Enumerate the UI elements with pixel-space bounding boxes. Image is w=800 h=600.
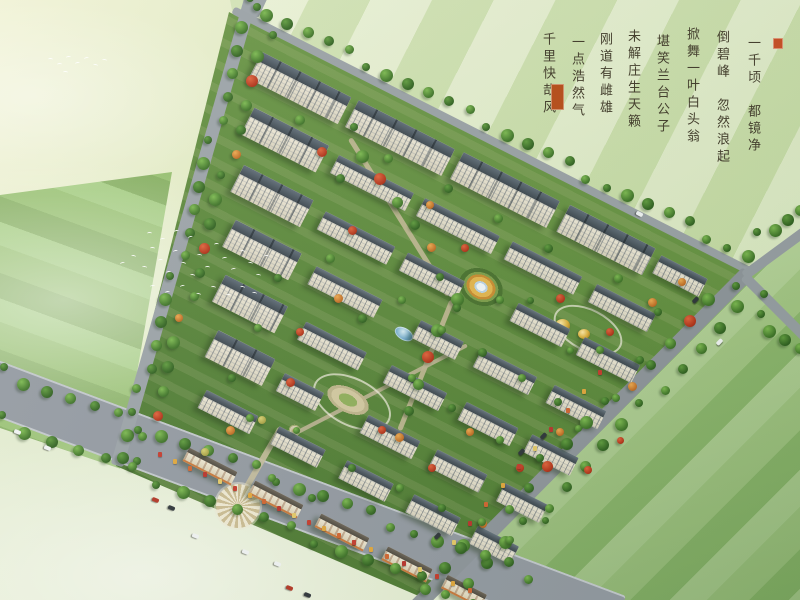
tree xyxy=(556,428,564,436)
tree xyxy=(226,426,235,435)
tree xyxy=(480,550,491,561)
bird xyxy=(142,266,147,270)
tree xyxy=(603,184,611,192)
tree xyxy=(436,273,444,281)
retail-banner xyxy=(468,588,472,593)
tree xyxy=(303,27,314,38)
tree xyxy=(466,428,474,436)
tree xyxy=(258,416,266,424)
tree xyxy=(565,156,575,166)
tree xyxy=(439,562,451,574)
bird xyxy=(48,58,53,61)
bird xyxy=(211,286,216,290)
tree xyxy=(336,174,345,183)
tree xyxy=(664,207,675,218)
tree xyxy=(606,328,614,336)
tree xyxy=(567,347,574,354)
bird xyxy=(158,259,163,262)
tree xyxy=(374,173,386,185)
tree xyxy=(466,105,475,114)
tree xyxy=(438,326,446,334)
calligraphy-column: 一点浩然气 xyxy=(570,35,583,120)
tree xyxy=(260,9,273,22)
retail-banner xyxy=(451,581,455,586)
tree xyxy=(581,175,590,184)
tree xyxy=(223,92,233,102)
tree xyxy=(241,100,252,111)
tree xyxy=(596,346,604,354)
tree xyxy=(763,325,776,338)
tree xyxy=(428,464,436,472)
tree xyxy=(334,294,343,303)
tree xyxy=(422,351,434,363)
calligraphy-column: 掀舞一叶白头翁 xyxy=(685,27,698,146)
bird xyxy=(160,238,165,242)
tree xyxy=(501,129,514,142)
tree xyxy=(545,504,554,513)
tree xyxy=(782,214,794,226)
tree xyxy=(293,483,306,496)
tree xyxy=(408,374,416,382)
tree xyxy=(575,425,582,432)
tree xyxy=(760,290,768,298)
tree xyxy=(496,436,504,444)
tree xyxy=(177,486,190,499)
tree xyxy=(426,201,434,209)
bird xyxy=(214,243,219,246)
bird xyxy=(226,294,231,297)
tree xyxy=(217,171,225,179)
bird xyxy=(252,292,257,296)
tree xyxy=(296,328,304,336)
tree xyxy=(615,418,628,431)
tree xyxy=(324,36,334,46)
retail-banner xyxy=(598,370,602,375)
tree xyxy=(151,340,162,351)
tree xyxy=(246,414,254,422)
tree xyxy=(384,154,393,163)
retail-banner xyxy=(188,466,192,471)
tree xyxy=(204,218,216,230)
tree xyxy=(518,374,526,382)
tree xyxy=(544,244,553,253)
tree xyxy=(121,429,134,442)
retail-banner xyxy=(435,574,439,579)
calligraphy-column: 倒碧峰 忽然浪起 xyxy=(715,30,728,166)
retail-banner xyxy=(385,554,389,559)
tree xyxy=(231,45,243,57)
tree xyxy=(584,466,592,474)
retail-banner xyxy=(549,427,553,432)
tree xyxy=(795,205,800,216)
tree xyxy=(444,184,453,193)
tree xyxy=(617,437,624,444)
tree xyxy=(232,150,241,159)
tree xyxy=(527,297,534,304)
retail-banner xyxy=(501,483,505,488)
retail-banner xyxy=(533,446,537,451)
calligraphy-column: 堪笑兰台公子 xyxy=(655,34,668,136)
bird xyxy=(150,285,155,288)
tree xyxy=(506,536,514,544)
retail-banner xyxy=(307,520,311,525)
tree xyxy=(308,494,316,502)
tree xyxy=(461,244,469,252)
tree xyxy=(448,404,456,412)
retail-banner xyxy=(248,493,252,498)
tree xyxy=(73,445,84,456)
tree xyxy=(556,294,565,303)
tree xyxy=(204,495,216,507)
tree xyxy=(295,115,305,125)
tree xyxy=(580,416,593,429)
retail-banner xyxy=(233,486,237,491)
tree xyxy=(326,254,335,263)
tree xyxy=(678,278,686,286)
bird xyxy=(248,262,253,266)
tree xyxy=(246,75,258,87)
tree xyxy=(41,386,53,398)
tree xyxy=(268,474,276,482)
tree xyxy=(153,411,163,421)
tree xyxy=(158,386,169,397)
tree xyxy=(254,324,262,332)
tree xyxy=(757,310,765,318)
tree xyxy=(396,484,404,492)
tree xyxy=(17,378,30,391)
tree xyxy=(636,356,644,364)
tree xyxy=(358,314,367,323)
tree xyxy=(524,483,534,493)
bird xyxy=(66,56,71,60)
tree xyxy=(286,378,295,387)
retail-banner xyxy=(452,540,456,545)
retail-banner xyxy=(566,408,570,413)
bird xyxy=(63,71,68,74)
seal-stamp-small xyxy=(773,38,783,49)
tree xyxy=(478,348,487,357)
tree xyxy=(386,523,395,532)
bird xyxy=(147,232,152,235)
bird xyxy=(197,254,202,258)
tree xyxy=(628,382,637,391)
tree xyxy=(342,498,353,509)
tree xyxy=(228,374,236,382)
retail-banner xyxy=(277,506,281,511)
tree xyxy=(195,268,205,278)
tree xyxy=(438,504,446,512)
tree xyxy=(453,304,461,312)
tree xyxy=(665,338,676,349)
tree xyxy=(714,322,726,334)
tree xyxy=(612,394,620,402)
bird xyxy=(102,59,107,63)
tree xyxy=(152,481,160,489)
tree xyxy=(742,250,755,263)
seal-stamp-large xyxy=(551,84,564,110)
tree xyxy=(648,298,657,307)
tree xyxy=(147,364,157,374)
tree xyxy=(779,334,791,346)
tree xyxy=(193,181,205,193)
tree xyxy=(702,235,711,244)
retail-banner xyxy=(468,521,472,526)
bird xyxy=(256,274,261,277)
tree xyxy=(159,293,172,306)
retail-banner xyxy=(203,472,207,477)
tree xyxy=(390,563,401,574)
tree xyxy=(201,448,209,456)
tree xyxy=(209,193,222,206)
tree xyxy=(378,426,386,434)
tree xyxy=(219,116,228,125)
tree xyxy=(114,408,123,417)
tree xyxy=(410,220,420,230)
tree xyxy=(494,214,503,223)
tree xyxy=(614,274,623,283)
retail-banner xyxy=(352,540,356,545)
retail-banner xyxy=(517,464,521,469)
tree xyxy=(251,50,264,63)
calligraphy-column: 一千顷 都镜净 xyxy=(746,36,759,155)
retail-banner xyxy=(292,513,296,518)
tree xyxy=(795,343,800,354)
tree xyxy=(228,453,238,463)
tree xyxy=(232,504,243,515)
tree xyxy=(348,226,357,235)
retail-banner xyxy=(402,561,406,566)
tree xyxy=(684,315,696,327)
tree xyxy=(478,518,486,526)
tree xyxy=(175,314,183,322)
tree xyxy=(661,386,670,395)
aerial-rendering: 一千顷 都镜净 倒碧峰 忽然浪起 掀舞一叶白头翁 堪笑兰台公子 未解庄生天籁 刚… xyxy=(0,0,800,600)
tree xyxy=(293,427,300,434)
retail-banner xyxy=(418,567,422,572)
tree xyxy=(420,584,431,595)
tree xyxy=(536,454,544,462)
tree xyxy=(90,401,100,411)
retail-banner xyxy=(158,452,162,457)
tree xyxy=(287,521,296,530)
retail-banner xyxy=(484,502,488,507)
tree xyxy=(356,150,369,163)
tree xyxy=(542,517,549,524)
tree xyxy=(723,244,731,252)
tree xyxy=(554,398,562,406)
tree xyxy=(423,87,434,98)
bird xyxy=(264,255,269,258)
retail-banner xyxy=(337,533,341,538)
tree xyxy=(404,406,414,416)
retail-banner xyxy=(218,479,222,484)
retail-banner xyxy=(173,459,177,464)
tree xyxy=(197,157,210,170)
tree xyxy=(274,274,282,282)
tree xyxy=(696,343,707,354)
tree xyxy=(732,282,740,290)
tree xyxy=(402,78,414,90)
retail-banner xyxy=(582,389,586,394)
tree xyxy=(134,426,142,434)
tree xyxy=(398,296,406,304)
bird xyxy=(57,63,62,66)
tree xyxy=(317,147,327,157)
tree xyxy=(348,464,356,472)
bird xyxy=(150,247,155,250)
tree xyxy=(366,505,376,515)
retail-banner xyxy=(369,547,373,552)
tree xyxy=(392,197,403,208)
calligraphy-column: 刚道有雌雄 xyxy=(598,32,611,117)
tree xyxy=(496,296,504,304)
calligraphy-column: 未解庄生天籁 xyxy=(626,29,639,131)
tree xyxy=(654,308,662,316)
retail-banner xyxy=(322,526,326,531)
tree xyxy=(345,45,354,54)
bird xyxy=(205,266,210,269)
